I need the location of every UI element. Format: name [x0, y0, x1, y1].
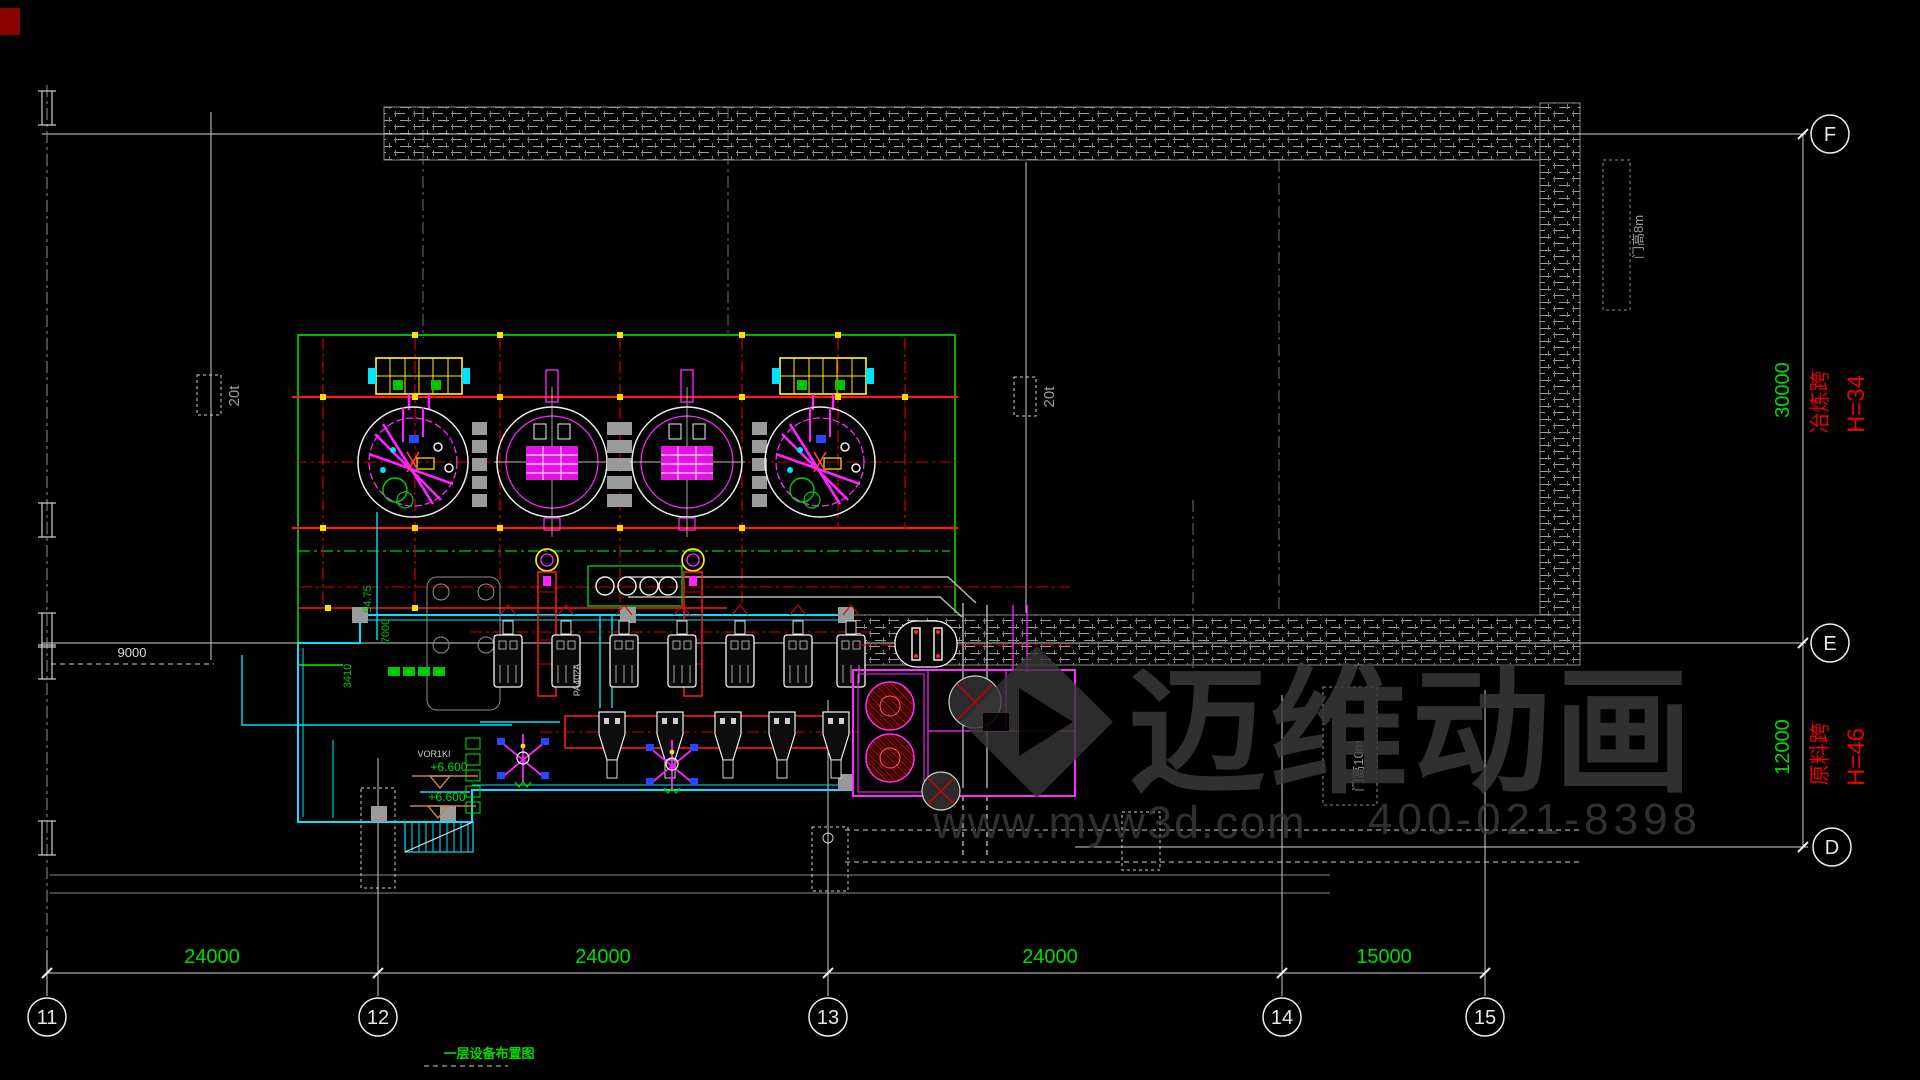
- door-top-label: 门高8m: [1631, 215, 1646, 259]
- furnace-units: [358, 358, 875, 537]
- bubble-14-label: 14: [1271, 1007, 1293, 1029]
- cad-viewport: 门高8m 门高10m 20t 20t 9000 54.75 3410 7000 …: [0, 0, 1920, 1080]
- crane-a-label: 20t: [226, 385, 243, 407]
- fan-1: [866, 682, 914, 730]
- dim-7000: 7000: [380, 619, 392, 643]
- dim-bottom-4: 15000: [1356, 946, 1412, 968]
- drawing-title: 一层设备布置图: [424, 1046, 535, 1066]
- bubble-F: F: [1811, 115, 1849, 153]
- dim-right-2: 12000: [1772, 719, 1794, 775]
- bubble-11: 11: [28, 998, 66, 1036]
- mixer-machine-1: [497, 734, 549, 787]
- bubble-E: E: [1811, 624, 1849, 662]
- level-b-label: +6.600: [428, 790, 465, 804]
- corner-marker: [0, 8, 20, 35]
- bottom-dimension-chain: 24000 24000 24000 15000: [42, 946, 1490, 996]
- crane-a-hook: [197, 375, 221, 415]
- bubble-15-label: 15: [1474, 1007, 1496, 1029]
- crane-symbols: 20t 20t: [197, 375, 1058, 416]
- dim-bottom-2: 24000: [575, 946, 631, 968]
- equip-tag: PA402A: [572, 664, 582, 696]
- bubble-D-label: D: [1825, 837, 1839, 859]
- machine-row-b: [497, 712, 860, 793]
- cad-drawing: 门高8m 门高10m 20t 20t 9000 54.75 3410 7000 …: [0, 0, 1920, 1080]
- process-building: [242, 512, 854, 852]
- dim-9000: 9000: [118, 645, 147, 660]
- watermark: 迈维动画 www.myw3d.com 400-021-8398: [932, 646, 1702, 848]
- fan-2: [866, 734, 914, 782]
- roller-conveyor: [588, 566, 682, 606]
- watermark-brand: 迈维动画: [1128, 656, 1696, 810]
- bubble-12: 12: [359, 998, 397, 1036]
- valve-row: [388, 667, 445, 676]
- bay-1-name: 冶炼跨: [1809, 371, 1832, 434]
- door-top-symbol: [1603, 160, 1630, 310]
- bubble-15: 15: [1466, 998, 1504, 1036]
- bay-1-height: H=34: [1843, 375, 1870, 433]
- aux-annotations: 9000 54.75 3410 7000 +6.600 +6.600 VOR1K…: [51, 585, 582, 822]
- dim-bottom-3: 24000: [1022, 946, 1078, 968]
- apron-edge-lines: [50, 875, 1330, 893]
- watermark-url: www.myw3d.com: [932, 797, 1307, 848]
- bubble-14: 14: [1263, 998, 1301, 1036]
- east-wall-hatched: [1540, 103, 1580, 665]
- furnace1-platform: [368, 358, 470, 410]
- bubble-13-label: 13: [817, 1007, 839, 1029]
- building-walls: [384, 103, 1580, 668]
- crane-b-label: 20t: [1041, 386, 1058, 408]
- bubble-11-label: 11: [37, 1007, 58, 1029]
- wall-axis-lines: [423, 107, 1279, 668]
- level-a-label: +6.600: [430, 760, 467, 774]
- dashed-pit-13: [812, 827, 848, 891]
- right-dimension-chain: 30000 12000 冶炼跨 H=34 原料跨 H=46: [1772, 129, 1870, 852]
- bay-2-name: 原料跨: [1809, 723, 1832, 786]
- watermark-phone: 400-021-8398: [1368, 795, 1702, 844]
- dim-right-1: 30000: [1772, 362, 1794, 418]
- bubble-13: 13: [809, 998, 847, 1036]
- machine-row-a: [470, 605, 870, 687]
- bay-2-height: H=46: [1843, 728, 1870, 786]
- furnace-2: [472, 370, 632, 537]
- bubble-F-label: F: [1824, 124, 1836, 146]
- bubble-D: D: [1813, 828, 1851, 866]
- myw3d-logo-icon: [961, 646, 1113, 798]
- bubble-E-label: E: [1823, 633, 1836, 655]
- title-text: 一层设备布置图: [443, 1046, 534, 1061]
- room-tag: VOR1KI: [417, 749, 450, 759]
- dim-3410: 3410: [342, 664, 354, 688]
- dim-5475: 54.75: [362, 585, 374, 613]
- entrance-stairs: [405, 822, 473, 852]
- crane-b-hook: [1014, 377, 1036, 416]
- furnace4-platform: [772, 358, 874, 410]
- dim-bottom-1: 24000: [184, 946, 240, 968]
- bubble-12-label: 12: [367, 1007, 389, 1029]
